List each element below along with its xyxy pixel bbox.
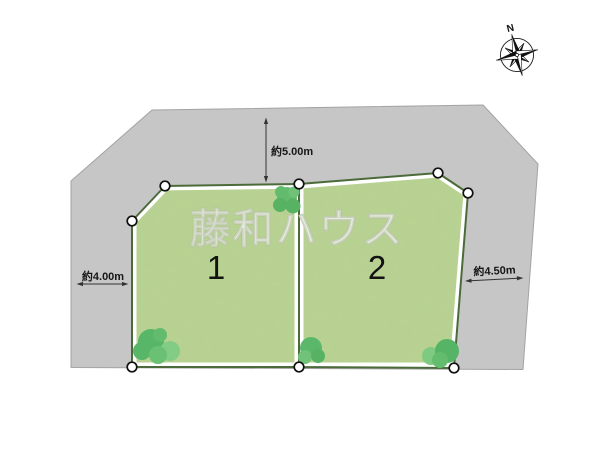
- dimension-left: 約4.00m: [77, 269, 129, 286]
- site-plan-canvas: 藤和ハウス 1 2 約5.00m 約4.00m: [0, 0, 600, 450]
- plot-1-number: 1: [207, 249, 225, 286]
- compass-rose-icon: N: [488, 18, 543, 81]
- site-plan-drawing: 藤和ハウス 1 2 約5.00m 約4.00m: [0, 0, 600, 450]
- watermark-text: 藤和ハウス: [190, 206, 405, 252]
- dimension-left-label: 約4.00m: [82, 269, 124, 283]
- dimension-top-label: 約5.00m: [271, 144, 313, 158]
- tree-icon-top-middle: [273, 186, 301, 214]
- compass-north-label: N: [506, 23, 516, 35]
- plot-2-number: 2: [368, 249, 386, 286]
